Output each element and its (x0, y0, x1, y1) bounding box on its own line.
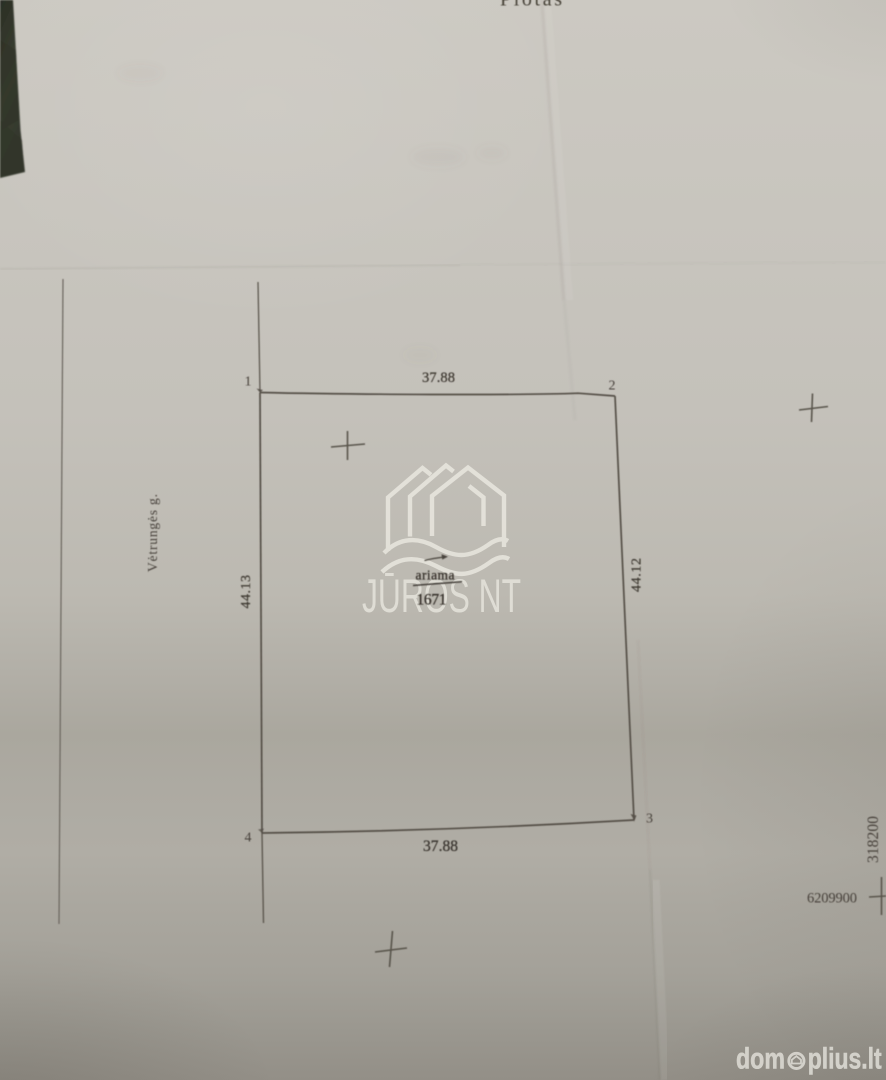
svg-text:ariama: ariama (416, 568, 455, 583)
svg-text:dom: dom (736, 1043, 785, 1076)
svg-text:2: 2 (609, 379, 616, 394)
svg-text:6209900: 6209900 (807, 891, 857, 907)
svg-text:Plotas: Plotas (500, 0, 562, 11)
svg-text:1671: 1671 (417, 592, 447, 609)
svg-text:1: 1 (245, 375, 252, 390)
svg-text:44.13: 44.13 (239, 575, 254, 609)
svg-text:Vėtrungės g.: Vėtrungės g. (145, 494, 160, 572)
svg-text:plius.lt: plius.lt (808, 1043, 882, 1076)
svg-text:37.88: 37.88 (423, 838, 458, 855)
svg-text:44.12: 44.12 (630, 558, 645, 592)
svg-text:318200: 318200 (865, 816, 882, 863)
svg-text:37.88: 37.88 (422, 370, 455, 386)
svg-text:4: 4 (245, 831, 252, 846)
svg-text:3: 3 (646, 812, 653, 827)
